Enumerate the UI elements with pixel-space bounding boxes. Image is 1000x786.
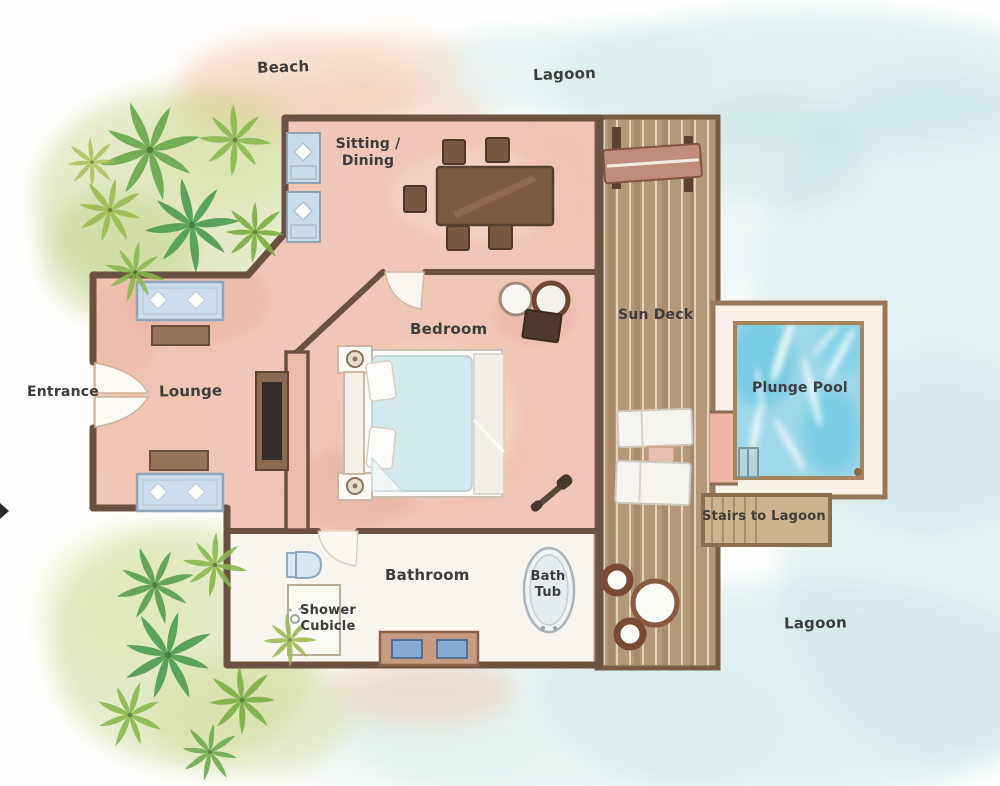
villa-floor-plan: Beach Lagoon Sitting / Dining Bedroom Lo… xyxy=(0,0,1000,786)
sun-lounger xyxy=(615,461,690,506)
dining-chair xyxy=(404,186,426,212)
sink xyxy=(437,640,467,658)
plunge-pool-area xyxy=(710,303,885,497)
coffee-table-top xyxy=(152,326,209,345)
label-bathroom: Bathroom xyxy=(385,566,470,584)
dining-chair xyxy=(489,225,512,249)
dining-chair xyxy=(443,140,465,164)
sink xyxy=(392,640,422,658)
edge-artifact-mark xyxy=(0,503,9,519)
pool-ladder xyxy=(739,448,758,477)
tv-wall xyxy=(286,352,308,530)
tv-console xyxy=(256,372,288,470)
label-lagoon-top: Lagoon xyxy=(533,64,597,84)
side-table xyxy=(522,310,562,343)
bed xyxy=(338,346,504,500)
deck-chair xyxy=(617,621,643,647)
sun-lounger xyxy=(617,409,692,448)
deck-round-table xyxy=(633,581,677,625)
lounge-sofa-top xyxy=(137,282,223,320)
label-sun-deck: Sun Deck xyxy=(618,307,693,323)
label-beach: Beach xyxy=(257,57,310,77)
vanity xyxy=(380,632,478,665)
dining-chair xyxy=(447,226,469,250)
dining-chair xyxy=(486,138,509,162)
coffee-table-bottom xyxy=(150,451,208,470)
label-plunge-pool: Plunge Pool xyxy=(752,380,848,396)
label-shower-line2: Cubicle xyxy=(301,619,356,634)
deck-side-table xyxy=(648,447,674,463)
label-sitting-dining-line2: Dining xyxy=(342,153,394,169)
label-lagoon-bottom: Lagoon xyxy=(784,613,847,632)
label-bath-tub-line1: Bath xyxy=(531,569,566,584)
label-sitting-dining-line1: Sitting / xyxy=(336,136,401,152)
label-lounge: Lounge xyxy=(159,381,223,400)
label-bath-tub-line2: Tub xyxy=(535,585,562,600)
toilet xyxy=(287,552,321,578)
label-bedroom: Bedroom xyxy=(410,320,487,338)
label-entrance: Entrance xyxy=(27,384,99,400)
floor-plan-art xyxy=(0,0,1000,786)
deck-chair xyxy=(604,567,630,593)
label-shower-line1: Shower xyxy=(300,603,356,618)
label-stairs-to-lagoon: Stairs to Lagoon xyxy=(702,509,826,524)
lounge-sofa-bottom xyxy=(137,474,223,511)
